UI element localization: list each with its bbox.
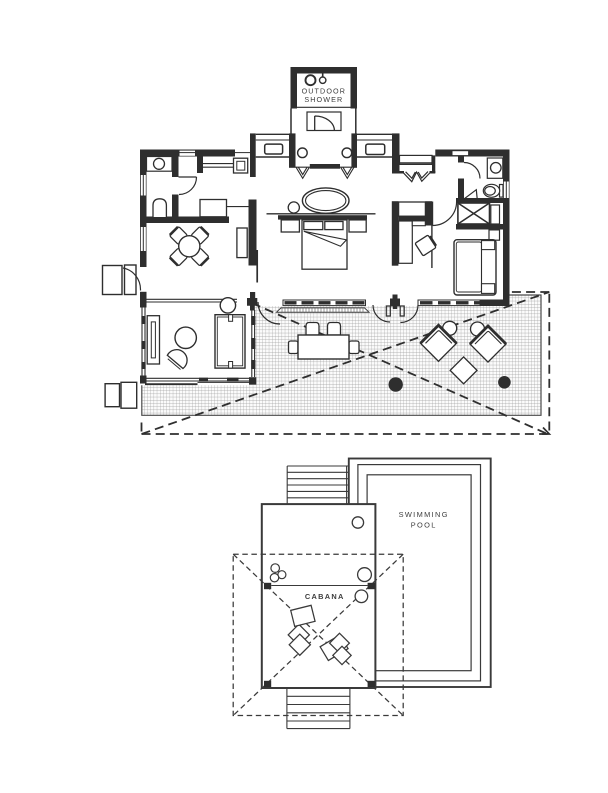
- svg-text:CABANA: CABANA: [305, 592, 345, 601]
- svg-text:SHOWER: SHOWER: [304, 95, 343, 104]
- svg-text:POOL: POOL: [411, 520, 437, 529]
- svg-text:OUTDOOR: OUTDOOR: [302, 86, 346, 95]
- svg-text:SWIMMING: SWIMMING: [399, 510, 449, 519]
